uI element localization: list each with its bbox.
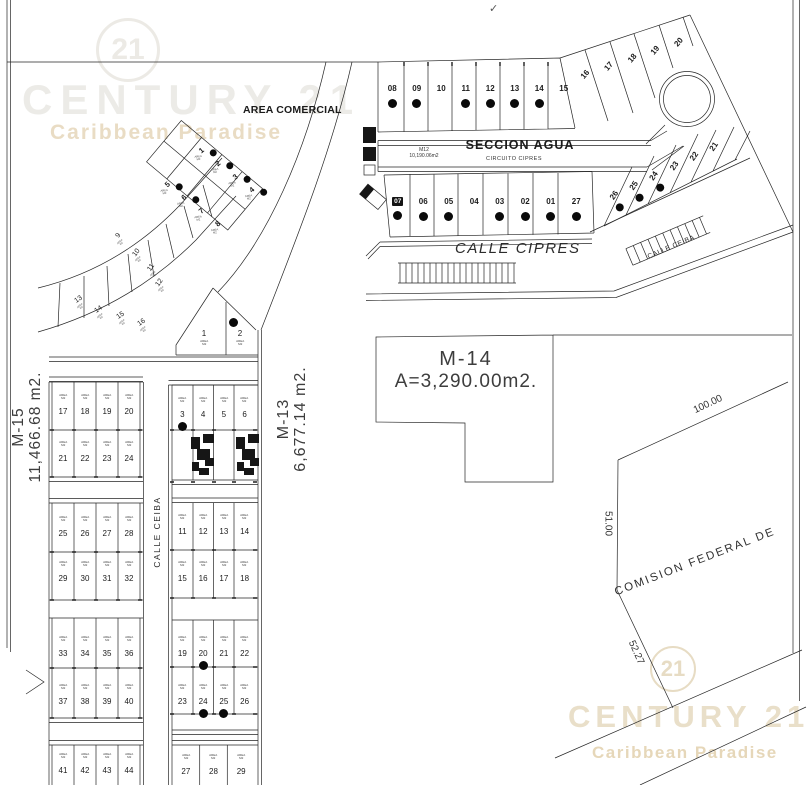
lot-cell: AREAM2 4 [193,397,214,431]
lot-number: 05 [444,197,453,207]
lot-number: 11 [178,527,186,537]
lot-number: 26 [240,697,249,707]
lot-cell: 07 [385,197,411,239]
lot-area-text: AREAM2 [220,397,228,403]
lot-number: 12 [199,527,208,537]
lot-number: 27 [103,529,112,539]
lot-number: 31 [103,574,112,584]
lot-area-text: AREAM2 [178,684,186,690]
lot-cell: 13 AREAM2 [69,295,89,317]
lot-number: 20 [125,407,134,417]
lot-cell: 14 [527,84,552,126]
lot-cell: AREAM2 12 [193,514,214,537]
lot-number: 40 [125,697,134,707]
lot-number: 38 [81,697,90,707]
lot-row-m15-17-20: AREAM2 17 AREAM2 18 AREAM2 19 AREAM2 20 [52,394,140,417]
lot-area-text: AREAM2 [178,636,186,642]
lot-cell: AREAM2 27 [96,516,118,539]
lot-area-text: AREAM2 [199,397,207,403]
lot-number: 13 [219,527,228,537]
lot-number: 39 [103,697,112,707]
lot-number: 4 [201,410,205,420]
lot-cell: 27 [564,197,590,239]
lot-number: 25 [59,529,68,539]
lot-area-text: AREAM2 [81,561,89,567]
lot-number: 15 [559,84,568,94]
block-m13-area: 6,677.14 m2. [292,334,309,504]
lot-cell: 09 [405,84,430,126]
lot-row-m13-11-14: AREAM2 11 AREAM2 12 AREAM2 13 AREAM2 14 [172,514,255,537]
lot-area-text: AREAM2 [81,394,89,400]
lot-cell: AREAM2 23 [172,684,193,718]
lot-cell: AREAM2 41 [52,753,74,776]
lot-cell: AREAM2 17 [52,394,74,417]
lot-cell: AREAM2 17 [214,561,235,584]
block-m12-area: 10,190.06m2 [409,153,438,159]
lot-cell: AREAM2 28 [200,754,228,777]
lot-cell: 1 AREAM2 [186,318,222,352]
lot-number: 19 [103,407,112,417]
lot-area-text: AREAM2 [241,397,249,403]
sold-marker-dot [388,99,397,108]
lot-area-text: AREAM2 [125,684,133,690]
lot-cell: 15 AREAM2 [111,311,131,333]
lot-cell: AREAM2 16 [193,561,214,584]
sold-marker-dot [219,709,228,718]
street-label-calle-ceiba-left: CALLE CEIBA [152,487,162,577]
lot-number: 25 [219,697,228,707]
lot-cell: 03 [487,197,513,239]
lot-cell: 10 [429,84,454,126]
lot-area-text: AREAM2 [241,684,249,690]
block-m14-area: A=3,290.00m2. [378,371,554,393]
lot-cell: 02 [513,197,539,239]
sold-marker-dot [199,709,208,718]
sold-marker-dot [444,212,453,221]
lot-number: 21 [59,454,68,464]
lot-area-text: AREAM2 [199,561,207,567]
lot-number: 1 [202,329,206,339]
lot-cell: 11 [454,84,479,126]
lot-area-text: AREAM2 [125,441,133,447]
lot-number: 14 [535,84,544,94]
sold-marker-dot [199,661,208,670]
lot-number: 24 [648,170,661,183]
lot-area-text: AREAM2 [81,516,89,522]
lot-cell: AREAM2 35 [96,636,118,659]
lot-area-text: AREAM2 [236,340,244,346]
lot-cell: AREAM2 38 [74,684,96,707]
lot-area-text: AREAM2 [209,754,217,760]
lot-cell: AREAM2 33 [52,636,74,659]
lot-cell: AREAM2 30 [74,561,96,584]
block-m15-area: 11,466.68 m2. [27,342,44,512]
lot-area-text: AREAM2 [177,202,185,208]
lot-area-text: AREAM2 [103,394,111,400]
lot-number: 09 [412,84,421,94]
lot-cell: AREAM2 18 [74,394,96,417]
lot-number: 41 [59,766,68,776]
lot-cell: 9 AREAM2 [109,231,129,253]
lot-row-m13-peak: 1 AREAM2 2 AREAM2 [186,318,258,352]
lot-number: 36 [125,649,134,659]
lot-cell: AREAM2 29 [52,561,74,584]
lot-cell: AREAM2 28 [118,516,140,539]
lot-row-m13-3-6: AREAM2 3 AREAM2 4 AREAM2 5 AREAM2 6 [172,397,255,431]
lot-number: 23 [668,160,681,173]
lot-cell: AREAM2 11 [172,514,193,537]
lot-area-text: AREAM2 [200,340,208,346]
lot-number: 43 [103,766,112,776]
lot-number: 06 [419,197,428,207]
sold-marker-dot [393,211,402,220]
lot-number: 5 [222,410,226,420]
lot-cell: AREAM2 20 [193,636,214,670]
lot-number: 25 [628,179,641,192]
lot-area-text: AREAM2 [220,561,228,567]
lot-area-text: AREAM2 [103,561,111,567]
lot-number: 26 [608,189,621,202]
lot-area-text: AREAM2 [59,684,67,690]
sold-marker-dot [178,422,187,431]
lot-area-text: AREAM2 [59,753,67,759]
lot-number: 19 [178,649,187,659]
lot-cell: 04 [462,197,488,239]
sold-marker-dot [572,212,581,221]
lot-row-m13-23-26: AREAM2 23 AREAM2 24 AREAM2 25 AREAM2 26 [172,684,255,718]
sold-marker-dot [495,212,504,221]
lot-cell: 01 [538,197,564,239]
lot-number: 24 [199,697,208,707]
lot-cell: AREAM2 19 [96,394,118,417]
sold-marker-dot [419,212,428,221]
lot-cell: AREAM2 31 [96,561,118,584]
lot-cell: 16 AREAM2 [132,318,152,340]
lot-area-text: AREAM2 [178,561,186,567]
lot-number: 17 [219,574,228,584]
lot-area-text: AREAM2 [199,684,207,690]
lot-number: 26 [81,529,90,539]
lot-area-text: AREAM2 [103,684,111,690]
block-label-m12: M12 10,190.06m2 [396,148,452,159]
lot-number: 15 [178,574,187,584]
lot-cell: AREAM2 18 [234,561,255,584]
lot-area-text: AREAM2 [220,514,228,520]
lot-area-text: AREAM2 [245,195,253,201]
lot-area-text: AREAM2 [199,514,207,520]
lot-cell: AREAM2 29 [227,754,255,777]
sold-marker-dot [510,99,519,108]
lot-number: 22 [81,454,90,464]
lot-cell: AREAM2 44 [118,753,140,776]
lot-cell: 14 AREAM2 [89,305,109,327]
lot-number: 21 [219,649,228,659]
lot-number: 3 [180,410,184,420]
lot-number: 17 [59,407,68,417]
block-m14-name: M-14 [378,348,554,371]
lot-cell: 13 [503,84,528,126]
lot-area-text: AREAM2 [211,229,219,235]
lot-cell: AREAM2 6 [234,397,255,431]
lot-area-text: AREAM2 [81,636,89,642]
lot-cell: AREAM2 25 [52,516,74,539]
lot-number: 10 [437,84,446,94]
lot-cell: AREAM2 24 [193,684,214,718]
lot-number: 21 [708,140,721,153]
lot-area-text: AREAM2 [178,397,186,403]
lot-cell: AREAM2 22 [74,441,96,464]
lot-area-text: AREAM2 [199,636,207,642]
lot-area-text: AREAM2 [178,514,186,520]
lot-number: 18 [240,574,249,584]
block-label-m14: M-14 A=3,290.00m2. [378,348,554,393]
lot-cell: AREAM2 42 [74,753,96,776]
lot-area-text: AREAM2 [103,441,111,447]
lot-number: 42 [81,766,90,776]
lot-area-text: AREAM2 [160,189,168,195]
lot-area-text: AREAM2 [103,753,111,759]
lot-cell: AREAM2 26 [74,516,96,539]
lot-cell: AREAM2 14 [234,514,255,537]
lot-number: 32 [125,574,134,584]
lot-number: 11 [462,84,470,94]
lot-cell: 08 [380,84,405,126]
lot-cell: AREAM2 37 [52,684,74,707]
lot-area-text: AREAM2 [228,181,236,187]
lot-row-m15-37-40: AREAM2 37 AREAM2 38 AREAM2 39 AREAM2 40 [52,684,140,707]
lot-row-m15-21-24: AREAM2 21 AREAM2 22 AREAM2 23 AREAM2 24 [52,441,140,464]
block-m15-name: M-15 [10,342,27,512]
lot-cell: AREAM2 32 [118,561,140,584]
lot-number: 20 [199,649,208,659]
lot-number: 6 [242,410,246,420]
lot-cell: 15 [552,84,577,126]
lot-number: 24 [125,454,134,464]
lot-area-text: AREAM2 [241,514,249,520]
lot-number: 23 [178,697,187,707]
lot-number: 27 [181,767,190,777]
lot-cell: AREAM2 19 [172,636,193,670]
dimension-51: 51.00 [603,496,614,552]
lot-number: 03 [495,197,504,207]
lot-area-text: AREAM2 [59,516,67,522]
lot-cell: AREAM2 24 [118,441,140,464]
lot-area-text: AREAM2 [241,636,249,642]
lot-number: 35 [103,649,112,659]
lot-row-m13-19-22: AREAM2 19 AREAM2 20 AREAM2 21 AREAM2 22 [172,636,255,670]
sold-marker-dot [521,212,530,221]
lot-area-text: AREAM2 [241,561,249,567]
lot-number: 12 [486,84,495,94]
lot-number: 29 [237,767,246,777]
zone-label-area-comercial: AREA COMERCIAL [243,104,342,116]
sold-marker-dot [229,318,238,327]
lot-area-text: AREAM2 [125,516,133,522]
lot-number: 28 [209,767,218,777]
lot-cell: AREAM2 40 [118,684,140,707]
lot-area-text: AREAM2 [125,753,133,759]
lot-area-text: AREAM2 [103,516,111,522]
lot-cell: 12 [478,84,503,126]
lot-row-m15-33-36: AREAM2 33 AREAM2 34 AREAM2 35 AREAM2 36 [52,636,140,659]
lot-area-text: AREAM2 [237,754,245,760]
lot-cell: AREAM2 3 [172,397,193,431]
lot-area-text: AREAM2 [81,441,89,447]
lot-cell: AREAM2 36 [118,636,140,659]
lot-cell: 06 [411,197,437,239]
lot-area-text: AREAM2 [194,215,202,221]
lot-number: 29 [59,574,68,584]
lot-cell: 05 [436,197,462,239]
lot-number: 28 [125,529,134,539]
lot-number: 2 [238,329,242,339]
lot-area-text: AREAM2 [59,441,67,447]
lot-area-text: AREAM2 [59,394,67,400]
lot-cell: AREAM2 27 [172,754,200,777]
lot-area-text: AREAM2 [81,753,89,759]
lot-area-text: AREAM2 [125,561,133,567]
lot-cell: 12 AREAM2 [150,278,170,300]
lot-cell: AREAM2 15 [172,561,193,584]
lot-cell: AREAM2 20 [118,394,140,417]
lot-row-m12-bottom: 07 06 05 04 03 02 01 27 [385,197,589,239]
lot-number: 27 [572,197,581,207]
lot-cell: AREAM2 25 [214,684,235,718]
lot-number: 04 [470,197,479,207]
lot-number: 07 [392,197,403,206]
lot-row-m13-27-29: AREAM2 27 AREAM2 28 AREAM2 29 [172,754,255,777]
lot-row-m15-25-28: AREAM2 25 AREAM2 26 AREAM2 27 AREAM2 28 [52,516,140,539]
lot-row-m15-29-32: AREAM2 29 AREAM2 30 AREAM2 31 AREAM2 32 [52,561,140,584]
lot-area-text: AREAM2 [220,684,228,690]
sold-marker-dot [546,212,555,221]
lot-area-text: AREAM2 [194,155,202,161]
lot-number: 08 [388,84,397,94]
lot-number: 37 [59,697,68,707]
lot-number: 13 [510,84,519,94]
lot-area-text: AREAM2 [116,239,124,247]
lot-number: 16 [199,574,208,584]
lot-cell: AREAM2 21 [52,441,74,464]
sold-marker-dot [412,99,421,108]
checkmark-icon: ✓ [489,2,498,15]
street-label-calle-cipres: CALLE CIPRES [455,240,581,257]
lot-cell: 2 AREAM2 [222,318,258,352]
lot-row-m15-41-44: AREAM2 41 AREAM2 42 AREAM2 43 AREAM2 44 [52,753,140,776]
lot-number: 01 [546,197,555,207]
lot-number: 22 [688,150,701,163]
lot-cell: AREAM2 13 [214,514,235,537]
lot-area-text: AREAM2 [125,636,133,642]
sold-marker-dot [486,99,495,108]
lot-cell: AREAM2 26 [234,684,255,718]
block-label-m15: M-15 11,466.68 m2. [10,342,44,512]
sold-marker-dot [461,99,470,108]
plat-map: 21 CENTURY 21 Caribbean Paradise 21 CENT… [0,0,809,785]
lot-area-text: AREAM2 [81,684,89,690]
lot-area-text: AREAM2 [103,636,111,642]
lot-area-text: AREAM2 [220,636,228,642]
lot-number: 22 [240,649,249,659]
lot-number: 14 [240,527,249,537]
lot-area-text: AREAM2 [59,561,67,567]
lot-number: 23 [103,454,112,464]
lot-cell: AREAM2 21 [214,636,235,670]
lot-cell: AREAM2 39 [96,684,118,707]
lot-row-m12-top: 08 09 10 11 12 13 14 15 [380,84,576,126]
lot-cell: AREAM2 22 [234,636,255,670]
block-label-m13: M-13 6,677.14 m2. [275,334,309,504]
lot-cell: AREAM2 34 [74,636,96,659]
lot-number: 34 [81,649,90,659]
lot-cell: AREAM2 5 [214,397,235,431]
sold-marker-dot [535,99,544,108]
lot-cell: AREAM2 23 [96,441,118,464]
street-label-circuito-cipres: CIRCUITO CIPRES [486,156,542,162]
lot-number: 02 [521,197,530,207]
lot-area-text: AREAM2 [211,168,219,174]
lot-row-m13-15-18: AREAM2 15 AREAM2 16 AREAM2 17 AREAM2 18 [172,561,255,584]
lot-area-text: AREAM2 [59,636,67,642]
lot-number: 33 [59,649,68,659]
lot-area-text: AREAM2 [125,394,133,400]
lot-number: 44 [125,766,134,776]
lot-number: 30 [81,574,90,584]
lot-number: 18 [81,407,90,417]
lot-cell: AREAM2 43 [96,753,118,776]
lot-area-text: AREAM2 [182,754,190,760]
block-m13-name: M-13 [275,334,292,504]
